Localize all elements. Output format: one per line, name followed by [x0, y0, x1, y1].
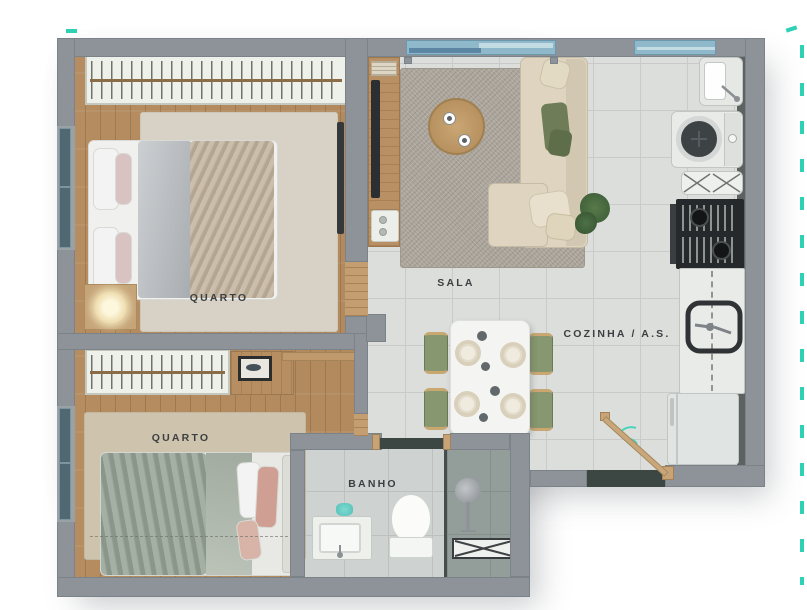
quarto1-wall-tv [337, 122, 344, 234]
banho-door-threshold [380, 438, 443, 449]
dining-chair [529, 389, 553, 431]
wall-bottom-left [57, 577, 530, 597]
plate [455, 340, 481, 366]
bowl [479, 413, 488, 422]
counter-divider [711, 271, 713, 391]
washer-drum [676, 116, 722, 162]
floor-plan: QUARTO SALA COZINHA / A.S. QUARTO BANHO [0, 0, 807, 610]
teal-dash [66, 29, 77, 33]
fridge-door-line [676, 394, 678, 464]
sofa-pillow [545, 212, 578, 241]
quarto1-wardrobe [85, 55, 347, 105]
glass-pane [59, 128, 71, 248]
room-label-cozinha-as: COZINHA / A.S. [527, 328, 707, 340]
soap-dish [336, 503, 353, 516]
quarto1-door-opening [345, 262, 368, 316]
floor-grate [452, 538, 515, 559]
banho-door-jamb [443, 434, 451, 450]
fish-art [246, 364, 261, 371]
glass-pane [409, 48, 481, 53]
wall-kitchen-bottom [665, 465, 765, 487]
media-device [371, 210, 399, 242]
wall-banho-top-left [290, 433, 382, 450]
wardrobe-rail [90, 371, 225, 374]
room-label-banho: BANHO [303, 478, 443, 490]
fridge-handle [670, 398, 674, 426]
toilet-bowl [391, 494, 431, 542]
glass-pane [479, 43, 553, 48]
room-label-sala: SALA [386, 277, 526, 289]
room-label-quarto-1: QUARTO [149, 292, 289, 304]
wall-banho-right [510, 433, 530, 577]
dining-chair [424, 332, 448, 374]
wall-banho-left [290, 450, 305, 577]
sala-tv [371, 80, 380, 198]
window-mullion [59, 186, 71, 188]
plate [500, 342, 526, 368]
sofa-cushion-green [547, 128, 573, 157]
entry-threshold [585, 470, 667, 487]
bowl [481, 362, 490, 371]
device-knob [379, 216, 387, 224]
burner [690, 208, 709, 227]
books-stack [371, 61, 397, 76]
plate [454, 391, 480, 417]
window-mullion [59, 462, 71, 464]
wall-hall [354, 333, 368, 414]
wall-banho-top-right [450, 433, 510, 450]
bowl [490, 386, 500, 396]
quarto1-duvet-beige [190, 141, 274, 298]
banho-door-jamb [372, 434, 380, 450]
device-knob [379, 228, 387, 236]
quarto2-duvet [101, 453, 207, 575]
pillow [115, 232, 132, 284]
quarto1-window [57, 126, 75, 250]
quarto1-duvet-grey [138, 141, 192, 298]
quarto2-window [57, 406, 75, 522]
vanity-basin [319, 523, 361, 553]
teal-dash-border [800, 45, 804, 585]
shower-head [455, 478, 481, 504]
dining-table [450, 320, 530, 436]
wall-entry-stub [530, 470, 587, 487]
cup [458, 134, 471, 147]
wall-quarto-divider [57, 333, 368, 350]
quarto2-wardrobe [85, 349, 230, 395]
burner [712, 241, 731, 260]
pillow [254, 465, 279, 528]
projection-dashed-line [90, 536, 298, 537]
dining-chair [424, 388, 448, 430]
laundry-basin [704, 62, 726, 100]
teal-dash [786, 25, 798, 32]
wall-right [745, 38, 765, 487]
coffee-table [428, 98, 485, 155]
bowl [477, 331, 487, 341]
wardrobe-rail [90, 79, 342, 82]
wall-divider-sala-quarto1 [345, 38, 368, 262]
quarto2-door-opening [354, 414, 368, 436]
room-label-quarto-2: QUARTO [111, 432, 251, 444]
kitchen-window [634, 40, 716, 55]
toilet-tank [389, 537, 433, 558]
balcony-wall-stub [550, 57, 558, 64]
glass-pane [637, 47, 715, 50]
balcony-glass-door [406, 40, 556, 55]
cup [443, 112, 456, 125]
table-lamp [94, 291, 127, 324]
glass-pane [59, 408, 71, 520]
balcony-wall-stub [404, 57, 412, 64]
pillow [115, 153, 132, 205]
washer-knob [728, 134, 737, 143]
shower-partition [444, 450, 447, 577]
wall-sala-corner-jut [366, 314, 386, 342]
folding-rack [681, 171, 743, 195]
plate [500, 393, 526, 419]
cooktop-knobs [670, 204, 676, 264]
